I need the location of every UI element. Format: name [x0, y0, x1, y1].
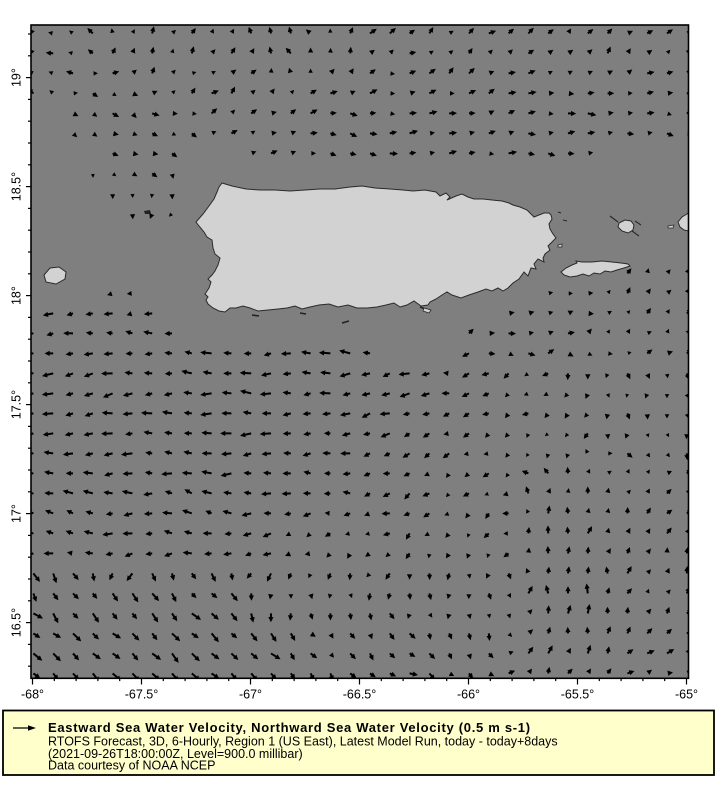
- svg-text:-66.5°: -66.5°: [343, 688, 377, 702]
- svg-text:Eastward Sea Water Velocity, N: Eastward Sea Water Velocity, Northward S…: [48, 720, 531, 735]
- svg-text:18°: 18°: [10, 286, 24, 305]
- svg-text:16.5°: 16.5°: [10, 608, 24, 637]
- svg-text:17.5°: 17.5°: [10, 390, 24, 419]
- svg-text:-65.5°: -65.5°: [561, 688, 595, 702]
- svg-text:-67.5°: -67.5°: [125, 688, 159, 702]
- svg-text:18.5°: 18.5°: [10, 172, 24, 201]
- svg-text:19°: 19°: [10, 68, 24, 87]
- svg-text:-67°: -67°: [239, 688, 262, 702]
- svg-text:-68°: -68°: [21, 688, 44, 702]
- svg-text:-66°: -66°: [457, 688, 480, 702]
- svg-text:Data courtesy of NOAA NCEP: Data courtesy of NOAA NCEP: [48, 759, 215, 773]
- svg-text:-65°: -65°: [675, 688, 698, 702]
- svg-text:17°: 17°: [10, 504, 24, 523]
